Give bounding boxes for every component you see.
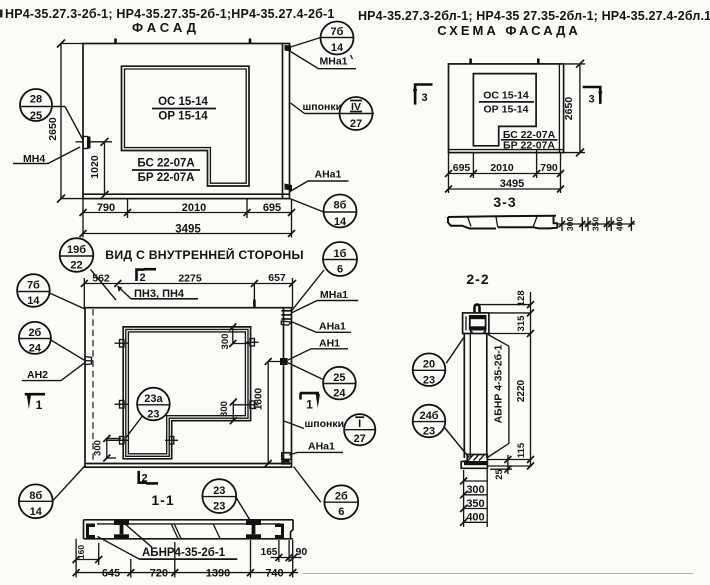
svg-text:2: 2: [139, 272, 145, 284]
svg-text:1б: 1б: [334, 248, 347, 260]
svg-text:400: 400: [466, 512, 484, 524]
svg-text:2б: 2б: [28, 327, 41, 339]
svg-text:23: 23: [423, 375, 435, 387]
svg-text:БР 22-07А: БР 22-07А: [503, 140, 555, 152]
svg-text:3495: 3495: [175, 224, 201, 236]
svg-text:ОС 15-14: ОС 15-14: [158, 96, 208, 108]
svg-text:115: 115: [516, 442, 527, 458]
svg-text:АНа1: АНа1: [315, 169, 342, 181]
svg-text:14: 14: [334, 216, 347, 228]
svg-text:350: 350: [466, 498, 484, 510]
svg-text:1390: 1390: [206, 568, 230, 580]
svg-text:27: 27: [350, 118, 362, 130]
svg-text:2220: 2220: [516, 379, 527, 402]
svg-text:2650: 2650: [563, 97, 575, 121]
svg-text:90: 90: [296, 546, 308, 558]
svg-text:695: 695: [263, 202, 281, 214]
svg-text:23: 23: [423, 426, 435, 438]
svg-text:6: 6: [337, 264, 343, 276]
svg-text:1800: 1800: [254, 387, 265, 410]
svg-text:АН1: АН1: [319, 338, 340, 350]
svg-text:БР 22-07А: БР 22-07А: [138, 172, 195, 184]
svg-text:НР4-35.27.3-2б-1; НР4-35.27.35: НР4-35.27.3-2б-1; НР4-35.27.35-2б-1;НР4-…: [5, 7, 335, 21]
svg-text:НР4-35.27.3-2бл-1; НР4-35 27.3: НР4-35.27.3-2бл-1; НР4-35 27.35-2бл-1; Н…: [358, 9, 710, 23]
svg-text:2-2: 2-2: [466, 271, 489, 287]
svg-text:165: 165: [261, 547, 278, 558]
svg-text:АБНР 4-35-2б-1: АБНР 4-35-2б-1: [493, 344, 505, 423]
svg-text:МНа1: МНа1: [320, 289, 348, 301]
svg-text:шпонки: шпонки: [305, 418, 345, 430]
svg-text:14: 14: [331, 42, 344, 54]
svg-text:СХЕМА ФАСАДА: СХЕМА ФАСАДА: [437, 23, 581, 38]
svg-text:645: 645: [102, 568, 120, 580]
svg-text:14: 14: [30, 506, 43, 518]
svg-text:300: 300: [93, 440, 104, 456]
svg-text:657: 657: [268, 272, 286, 284]
svg-text:300: 300: [219, 401, 230, 417]
svg-text:23а: 23а: [144, 393, 163, 405]
svg-text:25: 25: [494, 469, 505, 480]
svg-text:I: I: [358, 418, 361, 430]
svg-text:7б: 7б: [27, 280, 40, 292]
svg-text:ОР 15-14: ОР 15-14: [158, 111, 208, 123]
svg-text:19б: 19б: [67, 244, 86, 256]
svg-text:790: 790: [540, 162, 558, 174]
svg-text:ОР 15-14: ОР 15-14: [484, 104, 529, 116]
svg-text:23: 23: [213, 485, 225, 497]
svg-text:20: 20: [423, 359, 435, 371]
svg-text:8б: 8б: [29, 490, 42, 502]
svg-text:АБНР4-35-2б-1: АБНР4-35-2б-1: [142, 547, 226, 559]
svg-text:740: 740: [265, 568, 283, 580]
svg-text:шпонки: шпонки: [303, 101, 343, 113]
svg-text:25: 25: [30, 110, 42, 122]
svg-text:2010: 2010: [182, 202, 206, 214]
svg-text:300: 300: [220, 334, 231, 350]
svg-text:ФАСАД: ФАСАД: [132, 20, 200, 35]
svg-text:14: 14: [27, 295, 40, 307]
svg-text:23: 23: [213, 501, 225, 513]
svg-text:1020: 1020: [89, 155, 101, 179]
svg-text:2010: 2010: [490, 162, 514, 174]
svg-text:МНа1: МНа1: [320, 56, 348, 68]
svg-text:22: 22: [70, 260, 82, 272]
svg-text:2б: 2б: [335, 491, 348, 503]
svg-text:1: 1: [306, 398, 313, 412]
svg-text:24: 24: [29, 342, 42, 354]
svg-text:315: 315: [516, 315, 527, 332]
svg-text:ОС 15-14: ОС 15-14: [483, 90, 529, 102]
svg-text:1: 1: [36, 398, 43, 412]
svg-text:3495: 3495: [500, 178, 524, 190]
svg-text:АН2: АН2: [27, 369, 48, 381]
svg-text:6: 6: [338, 506, 344, 518]
svg-text:3: 3: [421, 92, 427, 104]
svg-text:300: 300: [565, 217, 575, 231]
svg-text:27: 27: [354, 433, 366, 445]
svg-text:АНа1: АНа1: [319, 321, 346, 333]
svg-text:128: 128: [516, 290, 527, 306]
svg-text:3: 3: [588, 94, 594, 106]
svg-text:720: 720: [150, 568, 168, 580]
svg-text:2650: 2650: [47, 117, 59, 141]
svg-text:ВИД С ВНУТРЕННЕЙ СТОРОНЫ: ВИД С ВНУТРЕННЕЙ СТОРОНЫ: [105, 247, 303, 262]
svg-text:3-3: 3-3: [493, 194, 516, 210]
svg-text:790: 790: [97, 202, 115, 214]
svg-text:БС 22-07А: БС 22-07А: [137, 158, 194, 170]
svg-text:24: 24: [333, 388, 346, 400]
svg-text:695: 695: [453, 162, 471, 174]
svg-text:2275: 2275: [178, 273, 202, 285]
svg-text:8б: 8б: [334, 200, 347, 212]
svg-text:АНа1: АНа1: [308, 441, 335, 453]
svg-text:25: 25: [333, 372, 345, 384]
svg-text:400: 400: [615, 217, 625, 231]
svg-text:7б: 7б: [331, 26, 344, 38]
svg-text:1-1: 1-1: [151, 492, 174, 508]
svg-text:28: 28: [30, 94, 42, 106]
svg-text:350: 350: [591, 217, 601, 231]
svg-text:23: 23: [147, 409, 159, 421]
svg-text:300: 300: [466, 484, 484, 496]
svg-text:160: 160: [76, 545, 86, 559]
svg-text:24б: 24б: [419, 410, 438, 422]
